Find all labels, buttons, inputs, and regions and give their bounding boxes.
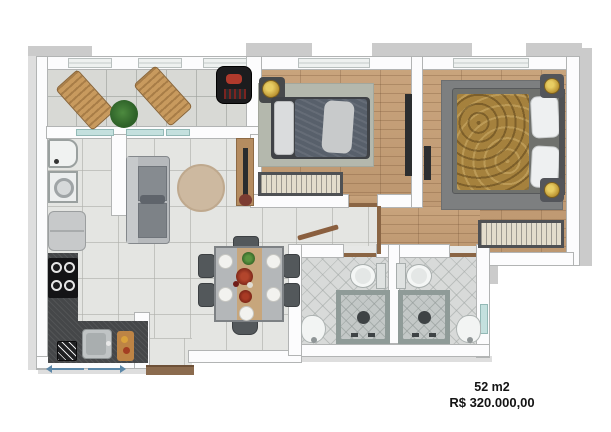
burner	[64, 262, 75, 273]
dining-chair-left-2	[198, 283, 215, 307]
tv-stand	[236, 138, 254, 206]
tv	[243, 148, 248, 196]
wall-shadow-right	[578, 48, 592, 266]
food-item	[121, 336, 128, 343]
burner	[64, 280, 75, 291]
listing-info: 52 m2 R$ 320.000,00	[408, 380, 576, 414]
wall-bath-top-a	[296, 244, 344, 258]
plate	[266, 287, 281, 302]
round-rug	[177, 164, 225, 212]
nightstand-top-surface	[544, 78, 560, 94]
dining-chair-right-2	[283, 283, 300, 307]
wall-laundry-stub	[111, 134, 127, 216]
threshold-bathroom2	[450, 253, 476, 257]
window-bedroom2	[453, 58, 529, 68]
hall-passage-floor	[296, 206, 384, 248]
toilet-seat	[411, 268, 427, 284]
wardrobe-1	[258, 172, 343, 196]
wall-shadow-top-3	[372, 43, 472, 57]
wall-shadow-top-2	[246, 43, 312, 57]
washing-machine	[48, 171, 78, 203]
cutting-board	[117, 331, 134, 361]
wall-bedrooms-divider	[411, 56, 423, 208]
window-bedroom1	[298, 58, 370, 68]
burner	[51, 280, 62, 291]
sliding-glass-door-1	[76, 129, 114, 136]
plate	[266, 254, 281, 269]
sofa-pillow	[140, 195, 165, 204]
shower-foot	[351, 333, 358, 337]
bathroom-sink-1	[301, 315, 326, 343]
wall-bottom-mid	[188, 350, 302, 363]
wall-tv-panel-bedroom1	[405, 94, 412, 176]
balcony-rail-window-2	[138, 58, 182, 68]
nightstand-bottom	[540, 178, 564, 202]
knife-block	[57, 341, 77, 361]
salad-bowl	[242, 252, 255, 265]
grill-meat	[226, 74, 242, 84]
dining-chair-right-1	[283, 254, 300, 278]
sofa-back	[127, 157, 138, 243]
window-bathroom2	[480, 304, 488, 334]
cooktop	[48, 258, 78, 298]
sofa-seat	[138, 203, 167, 238]
shower-head	[357, 311, 370, 324]
threshold-bathroom1	[344, 253, 376, 257]
shower-1	[336, 290, 390, 344]
sliding-glass-door-2	[126, 129, 164, 136]
duvet-gold	[457, 94, 529, 190]
area-label: 52 m2	[408, 380, 576, 395]
grill-grate	[224, 89, 246, 99]
wall-shadow-top-4	[526, 43, 582, 57]
toilet-seat	[355, 268, 371, 284]
wall-shadow-left	[28, 56, 36, 370]
sink-faucet	[311, 337, 317, 343]
single-bed	[271, 97, 370, 159]
wall-tv-panel-bedroom2	[424, 146, 431, 180]
bathroom-sink-2	[456, 315, 481, 343]
condiment-dot	[233, 281, 239, 287]
balcony-rail-window-1	[68, 58, 112, 68]
entry-mat	[146, 365, 194, 375]
decor-plant-red	[239, 194, 252, 206]
toilet-tank	[376, 263, 386, 289]
dimension-line	[88, 368, 122, 370]
wall-right-lower	[476, 244, 490, 358]
food-bowl-red-2	[239, 290, 252, 303]
sliding-glass-door-3	[166, 129, 190, 136]
toilet-1	[350, 263, 386, 289]
shower-foot	[368, 333, 375, 337]
wall-right-upper	[566, 56, 580, 266]
pillow	[274, 101, 294, 155]
shower-foot	[429, 333, 436, 337]
plate	[218, 287, 233, 302]
dimension-arrow-left	[46, 365, 52, 373]
wall-left	[36, 56, 48, 370]
condiment-dot	[247, 282, 253, 288]
wall-bedroom1-bottom-a	[250, 194, 349, 208]
pillow	[530, 95, 560, 138]
burner	[51, 262, 62, 273]
toilet-2	[396, 263, 432, 289]
sink-faucet	[467, 337, 473, 343]
bbq-grill	[216, 66, 252, 104]
laundry-tub	[48, 139, 78, 168]
sofa	[126, 156, 170, 244]
price-label: R$ 320.000,00	[408, 395, 576, 410]
nightstand-top	[540, 74, 564, 98]
wardrobe-2	[478, 220, 564, 248]
faucet	[106, 341, 111, 346]
wall-bottom-bathrooms	[296, 344, 490, 357]
tub-drain	[54, 159, 59, 164]
threshold-hallway	[377, 206, 381, 254]
fridge-door-split	[50, 230, 84, 232]
plate	[239, 306, 254, 321]
food-item	[123, 347, 130, 354]
blanket	[321, 100, 355, 154]
sink-basin	[86, 333, 106, 355]
plate	[218, 254, 233, 269]
floor-plan: 52 m2 R$ 320.000,00	[0, 0, 611, 432]
toilet-tank	[396, 263, 406, 289]
threshold-bedroom1	[349, 203, 377, 207]
potted-plant	[110, 100, 138, 128]
refrigerator	[48, 211, 86, 251]
dimension-arrow-right	[120, 365, 126, 373]
dimension-line	[50, 368, 84, 370]
kitchen-sink	[82, 329, 112, 359]
shower-head	[418, 311, 431, 324]
shower-foot	[412, 333, 419, 337]
wall-step-bedroom2	[478, 252, 574, 266]
washer-drum	[54, 178, 74, 198]
shower-2	[398, 290, 450, 344]
nightstand-bottom-surface	[544, 182, 560, 198]
gold-side-table-top	[262, 80, 280, 98]
dining-chair-left-1	[198, 254, 215, 278]
